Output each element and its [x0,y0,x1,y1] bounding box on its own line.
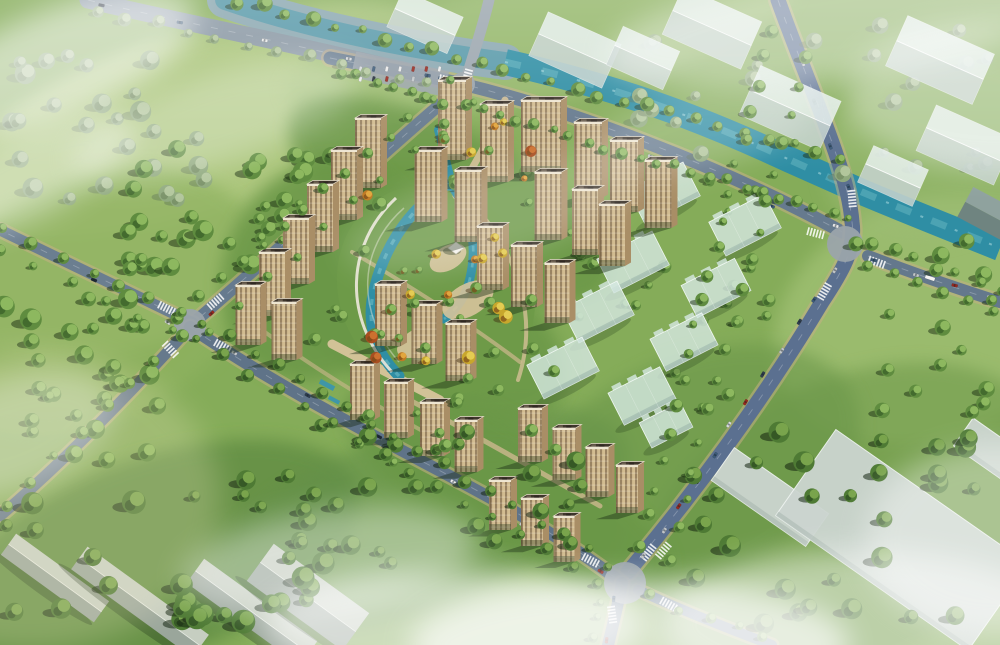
aerial-masterplan-rendering [0,0,1000,645]
rendering-canvas [0,0,1000,645]
